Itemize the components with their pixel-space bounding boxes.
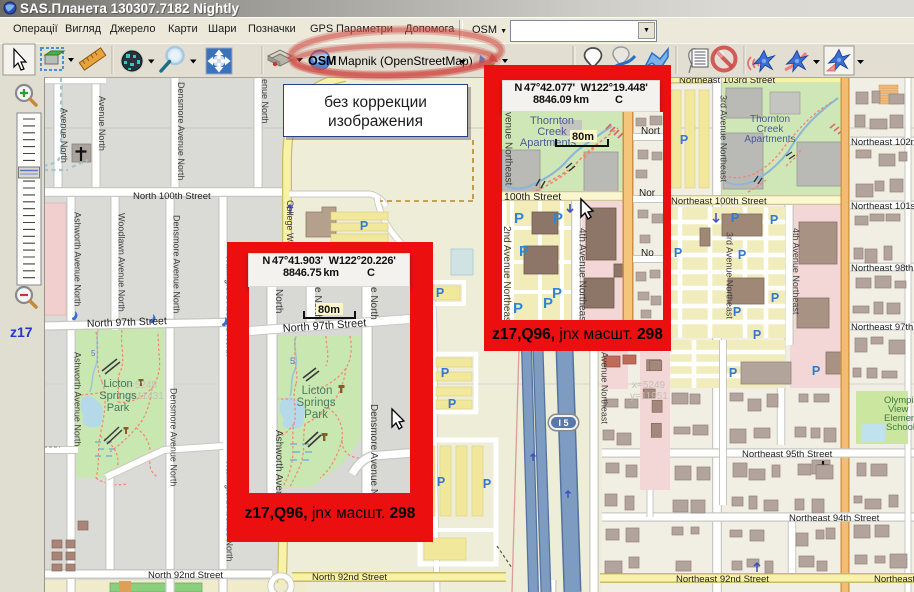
svg-text:P: P <box>770 213 778 227</box>
svg-text:Densmore Avenue North: Densmore Avenue North <box>172 215 182 313</box>
svg-text:Licton: Licton <box>103 378 132 390</box>
svg-text:80m: 80m <box>318 304 340 316</box>
svg-text:3rd Avenue Northeast: 3rd Avenue Northeast <box>719 95 729 182</box>
svg-text:P: P <box>514 210 524 227</box>
svg-text:P: P <box>448 397 456 411</box>
svg-text:P: P <box>436 286 444 300</box>
svg-text:Northeast 100th Street: Northeast 100th Street <box>671 196 767 207</box>
svg-text:Northeast 101st Street: Northeast 101st Street <box>851 201 914 212</box>
svg-text:P: P <box>812 364 820 378</box>
svg-text:P: P <box>441 366 449 380</box>
svg-text:enue North: enue North <box>260 79 270 124</box>
svg-text:4th Avenue Northeast: 4th Avenue Northeast <box>791 228 801 315</box>
svg-text:Northeast 103rd Street: Northeast 103rd Street <box>679 77 775 86</box>
svg-text:3rd Avenue Northeast: 3rd Avenue Northeast <box>725 232 735 319</box>
svg-text:P: P <box>680 133 688 147</box>
svg-text:Ashworth Avenue North: Ashworth Avenue North <box>73 212 83 306</box>
svg-text:Avenue North: Avenue North <box>97 96 107 151</box>
svg-text:e North: e North <box>368 287 379 320</box>
svg-text:2nd Avenue Northeast: 2nd Avenue Northeast <box>502 226 512 320</box>
svg-text:P: P <box>674 246 682 260</box>
svg-text:venue Northeast: venue Northeast <box>503 112 514 186</box>
svg-text:P: P <box>753 328 761 342</box>
svg-text:5: 5 <box>91 349 96 358</box>
svg-text:Avenue North: Avenue North <box>59 108 69 163</box>
svg-text:Densmore Avenue North: Densmore Avenue North <box>176 82 186 180</box>
svg-text:School: School <box>886 422 914 433</box>
svg-text:P: P <box>738 248 746 262</box>
svg-text:Apartments: Apartments <box>744 134 795 145</box>
svg-text:P: P <box>519 243 529 260</box>
svg-text:P: P <box>729 366 737 380</box>
svg-text:Licton: Licton <box>302 385 333 397</box>
svg-text:Northeast 92nd Street: Northeast 92nd Street <box>676 574 769 585</box>
svg-text:P: P <box>513 300 523 317</box>
svg-text:Northeast 94th Street: Northeast 94th Street <box>789 513 880 524</box>
svg-text:P: P <box>483 477 491 491</box>
svg-text:North: North <box>273 289 284 313</box>
svg-text:Northeast 95th Street: Northeast 95th Street <box>742 449 833 460</box>
svg-text:x=5249: x=5249 <box>632 380 666 391</box>
svg-text:Northeast 102nd Street: Northeast 102nd Street <box>851 137 914 148</box>
svg-text:Northeast 92nd Street: Northeast 92nd Street <box>874 574 914 585</box>
svg-text:North 92nd Street: North 92nd Street <box>148 570 223 581</box>
svg-text:P: P <box>731 211 739 225</box>
svg-text:z17: z17 <box>10 324 33 340</box>
svg-text:P: P <box>553 210 563 227</box>
svg-text:Nor: Nor <box>639 188 656 199</box>
svg-text:Densmore Avenue Nor: Densmore Avenue Nor <box>368 404 379 493</box>
svg-text:Northeast 97th Street: Northeast 97th Street <box>851 322 914 333</box>
svg-text:I 5: I 5 <box>558 418 568 428</box>
svg-text:P: P <box>552 285 562 302</box>
svg-text:Northeast 98th Street: Northeast 98th Street <box>851 263 914 274</box>
svg-text:P: P <box>771 291 779 305</box>
svg-text:North 92nd Street: North 92nd Street <box>312 572 387 583</box>
svg-text:No: No <box>641 248 654 259</box>
svg-text:P: P <box>360 219 368 233</box>
svg-text:Springs: Springs <box>297 397 336 409</box>
svg-text:North 100th Street: North 100th Street <box>133 191 211 202</box>
svg-text:Ashworth Avenue North: Ashworth Avenue North <box>73 352 83 446</box>
svg-text:Apartments: Apartments <box>520 137 577 149</box>
svg-text:Mapnik (OpenStreetMap): Mapnik (OpenStreetMap) <box>338 54 473 68</box>
svg-text:OSM: OSM <box>308 54 336 68</box>
svg-text:P: P <box>543 295 553 312</box>
svg-text:4th Avenue Northeast: 4th Avenue Northeast <box>577 228 588 320</box>
svg-text:Park: Park <box>304 409 328 421</box>
svg-text:y=11951: y=11951 <box>630 391 668 402</box>
svg-text:Densmore Avenue North: Densmore Avenue North <box>169 388 179 486</box>
svg-text:Park: Park <box>107 402 130 414</box>
svg-text:80m: 80m <box>572 131 594 143</box>
svg-text:P: P <box>437 475 445 489</box>
svg-text:Springs: Springs <box>99 390 137 402</box>
svg-text:5: 5 <box>290 356 295 366</box>
svg-text:Ashworth Avenue Nort: Ashworth Avenue Nort <box>273 430 284 493</box>
svg-text:Nort: Nort <box>641 126 660 137</box>
svg-text:Woodlawn Avenue North: Woodlawn Avenue North <box>117 213 127 312</box>
